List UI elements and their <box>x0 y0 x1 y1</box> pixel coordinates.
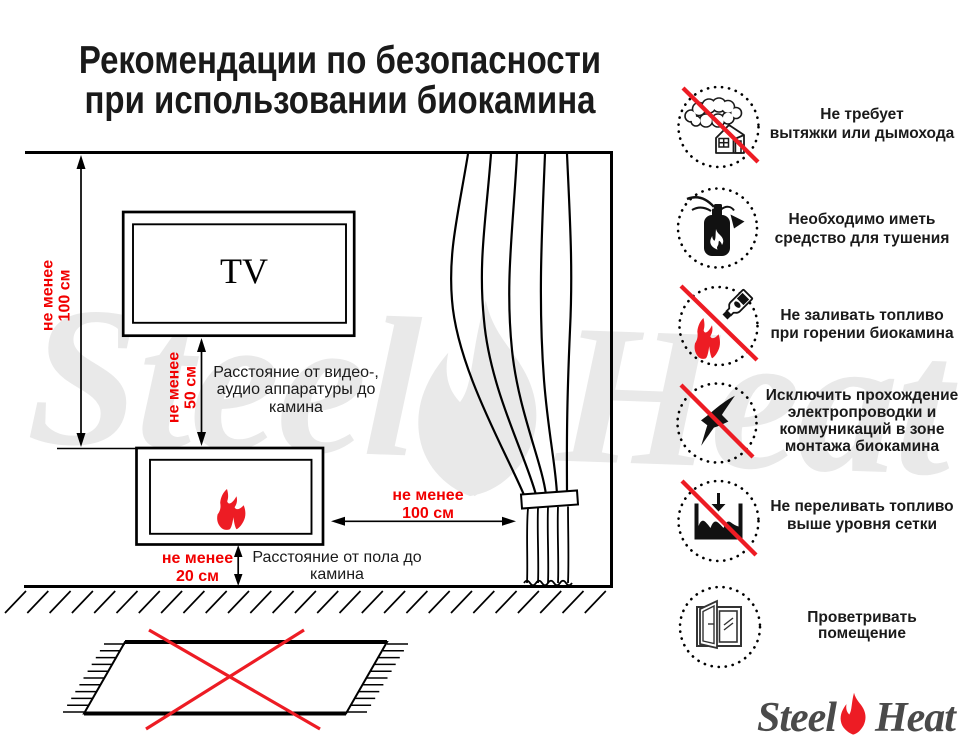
svg-text:TV: TV <box>220 251 268 291</box>
